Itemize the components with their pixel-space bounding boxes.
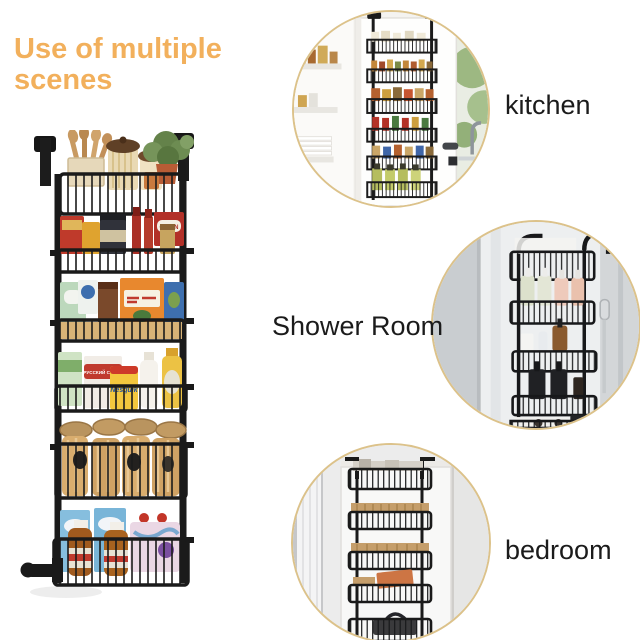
door-lock [448, 157, 457, 166]
wire-basket-5 [56, 444, 186, 498]
shower-basket-1 [511, 252, 595, 280]
shower-basket-3 [513, 351, 597, 371]
door-handle [442, 143, 458, 150]
floor-shadow [30, 586, 102, 598]
product-showcase-image: Use of multiple scenes [0, 0, 640, 640]
scene-photo-shower-room [431, 220, 640, 430]
door-hook-bottom-icon [21, 558, 64, 582]
wire-basket-3 [58, 320, 184, 341]
bedroom-basket-2 [349, 512, 431, 529]
shower-basket-4 [513, 396, 597, 415]
bedroom-basket-5 [349, 619, 431, 640]
page-title: Use of multiple scenes [14, 34, 246, 95]
scene-photo-bedroom [291, 443, 491, 640]
pantry-shelves [294, 12, 353, 206]
bedroom-basket-4 [349, 585, 431, 602]
wire-basket-6 [54, 539, 188, 585]
shower-basket-5 [511, 421, 597, 428]
wire-basket-2 [58, 250, 184, 272]
door-hook-left-icon [34, 136, 56, 186]
scene-label-kitchen: kitchen [505, 90, 591, 121]
bedroom-basket-3 [349, 552, 431, 569]
scene-label-bedroom: bedroom [505, 535, 612, 566]
wire-basket-4 [56, 386, 186, 411]
kitchen-scene-illustration [294, 12, 488, 206]
over-door-rack-product-photo: CANIN [16, 130, 228, 608]
bedroom-basket-1 [349, 469, 431, 489]
bedroom-scene-illustration [293, 445, 489, 640]
wood-lid-jars [60, 419, 186, 438]
scene-photo-kitchen [292, 10, 490, 208]
shower-scene-illustration [433, 222, 639, 428]
scene-label-shower-room: Shower Room [272, 311, 443, 342]
shower-basket-2 [511, 302, 595, 324]
wire-basket-1 [60, 174, 184, 214]
